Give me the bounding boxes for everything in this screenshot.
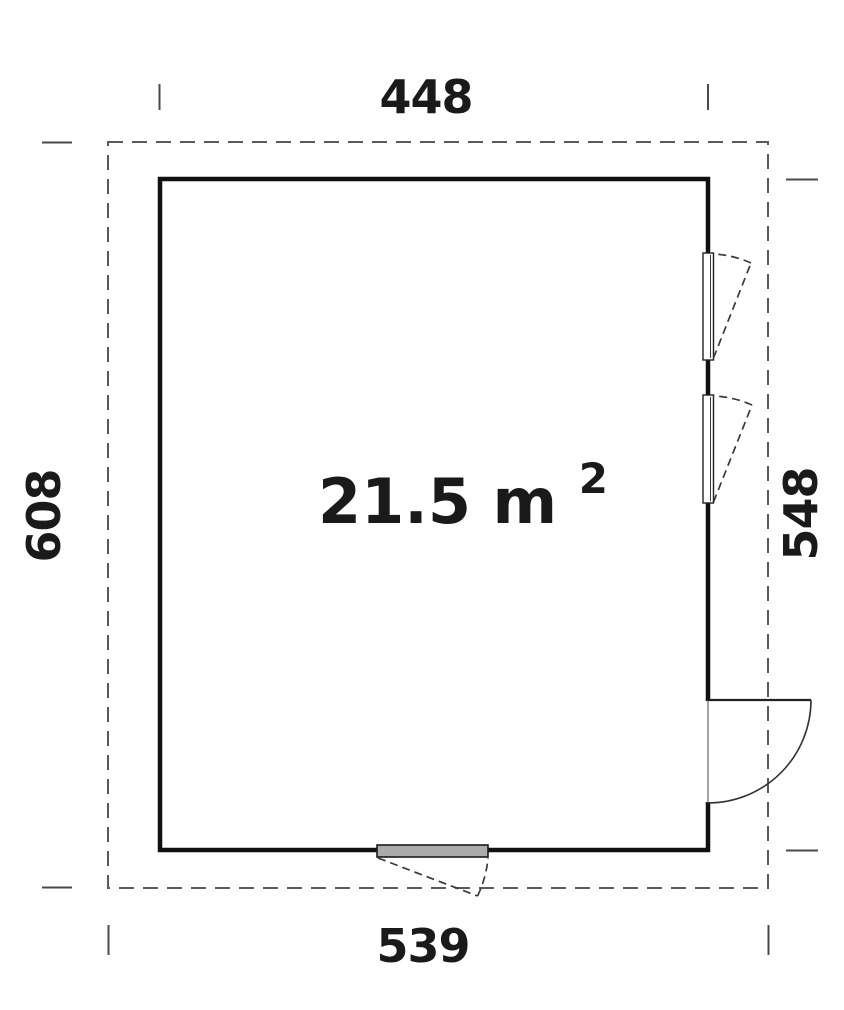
dim-label-left: 608 — [17, 469, 71, 562]
area-label: 21.5 m 2 — [318, 454, 608, 538]
window-frame — [703, 253, 714, 360]
door-swing-arc — [708, 700, 811, 803]
door-panel — [377, 845, 488, 857]
window-swing-arc — [714, 254, 752, 263]
floor-plan-drawing: 448 539 608 548 21.5 m 2 — [0, 0, 844, 1010]
window-swing-line — [714, 405, 753, 502]
window-swing-arc — [714, 396, 753, 405]
door-right — [704, 700, 812, 803]
dim-label-bottom: 539 — [376, 919, 469, 973]
dim-label-right: 548 — [774, 467, 828, 560]
door-swing-arc — [478, 858, 489, 896]
window-lower-right — [703, 395, 752, 503]
door-swing-line — [378, 858, 478, 896]
dim-label-top: 448 — [379, 70, 472, 124]
area-exponent: 2 — [579, 454, 608, 503]
area-value: 21.5 m — [318, 465, 557, 538]
floor-plan-canvas: 448 539 608 548 21.5 m 2 — [0, 0, 844, 1010]
window-swing-line — [714, 263, 752, 358]
window-upper-right — [703, 253, 751, 360]
window-frame — [703, 395, 714, 503]
